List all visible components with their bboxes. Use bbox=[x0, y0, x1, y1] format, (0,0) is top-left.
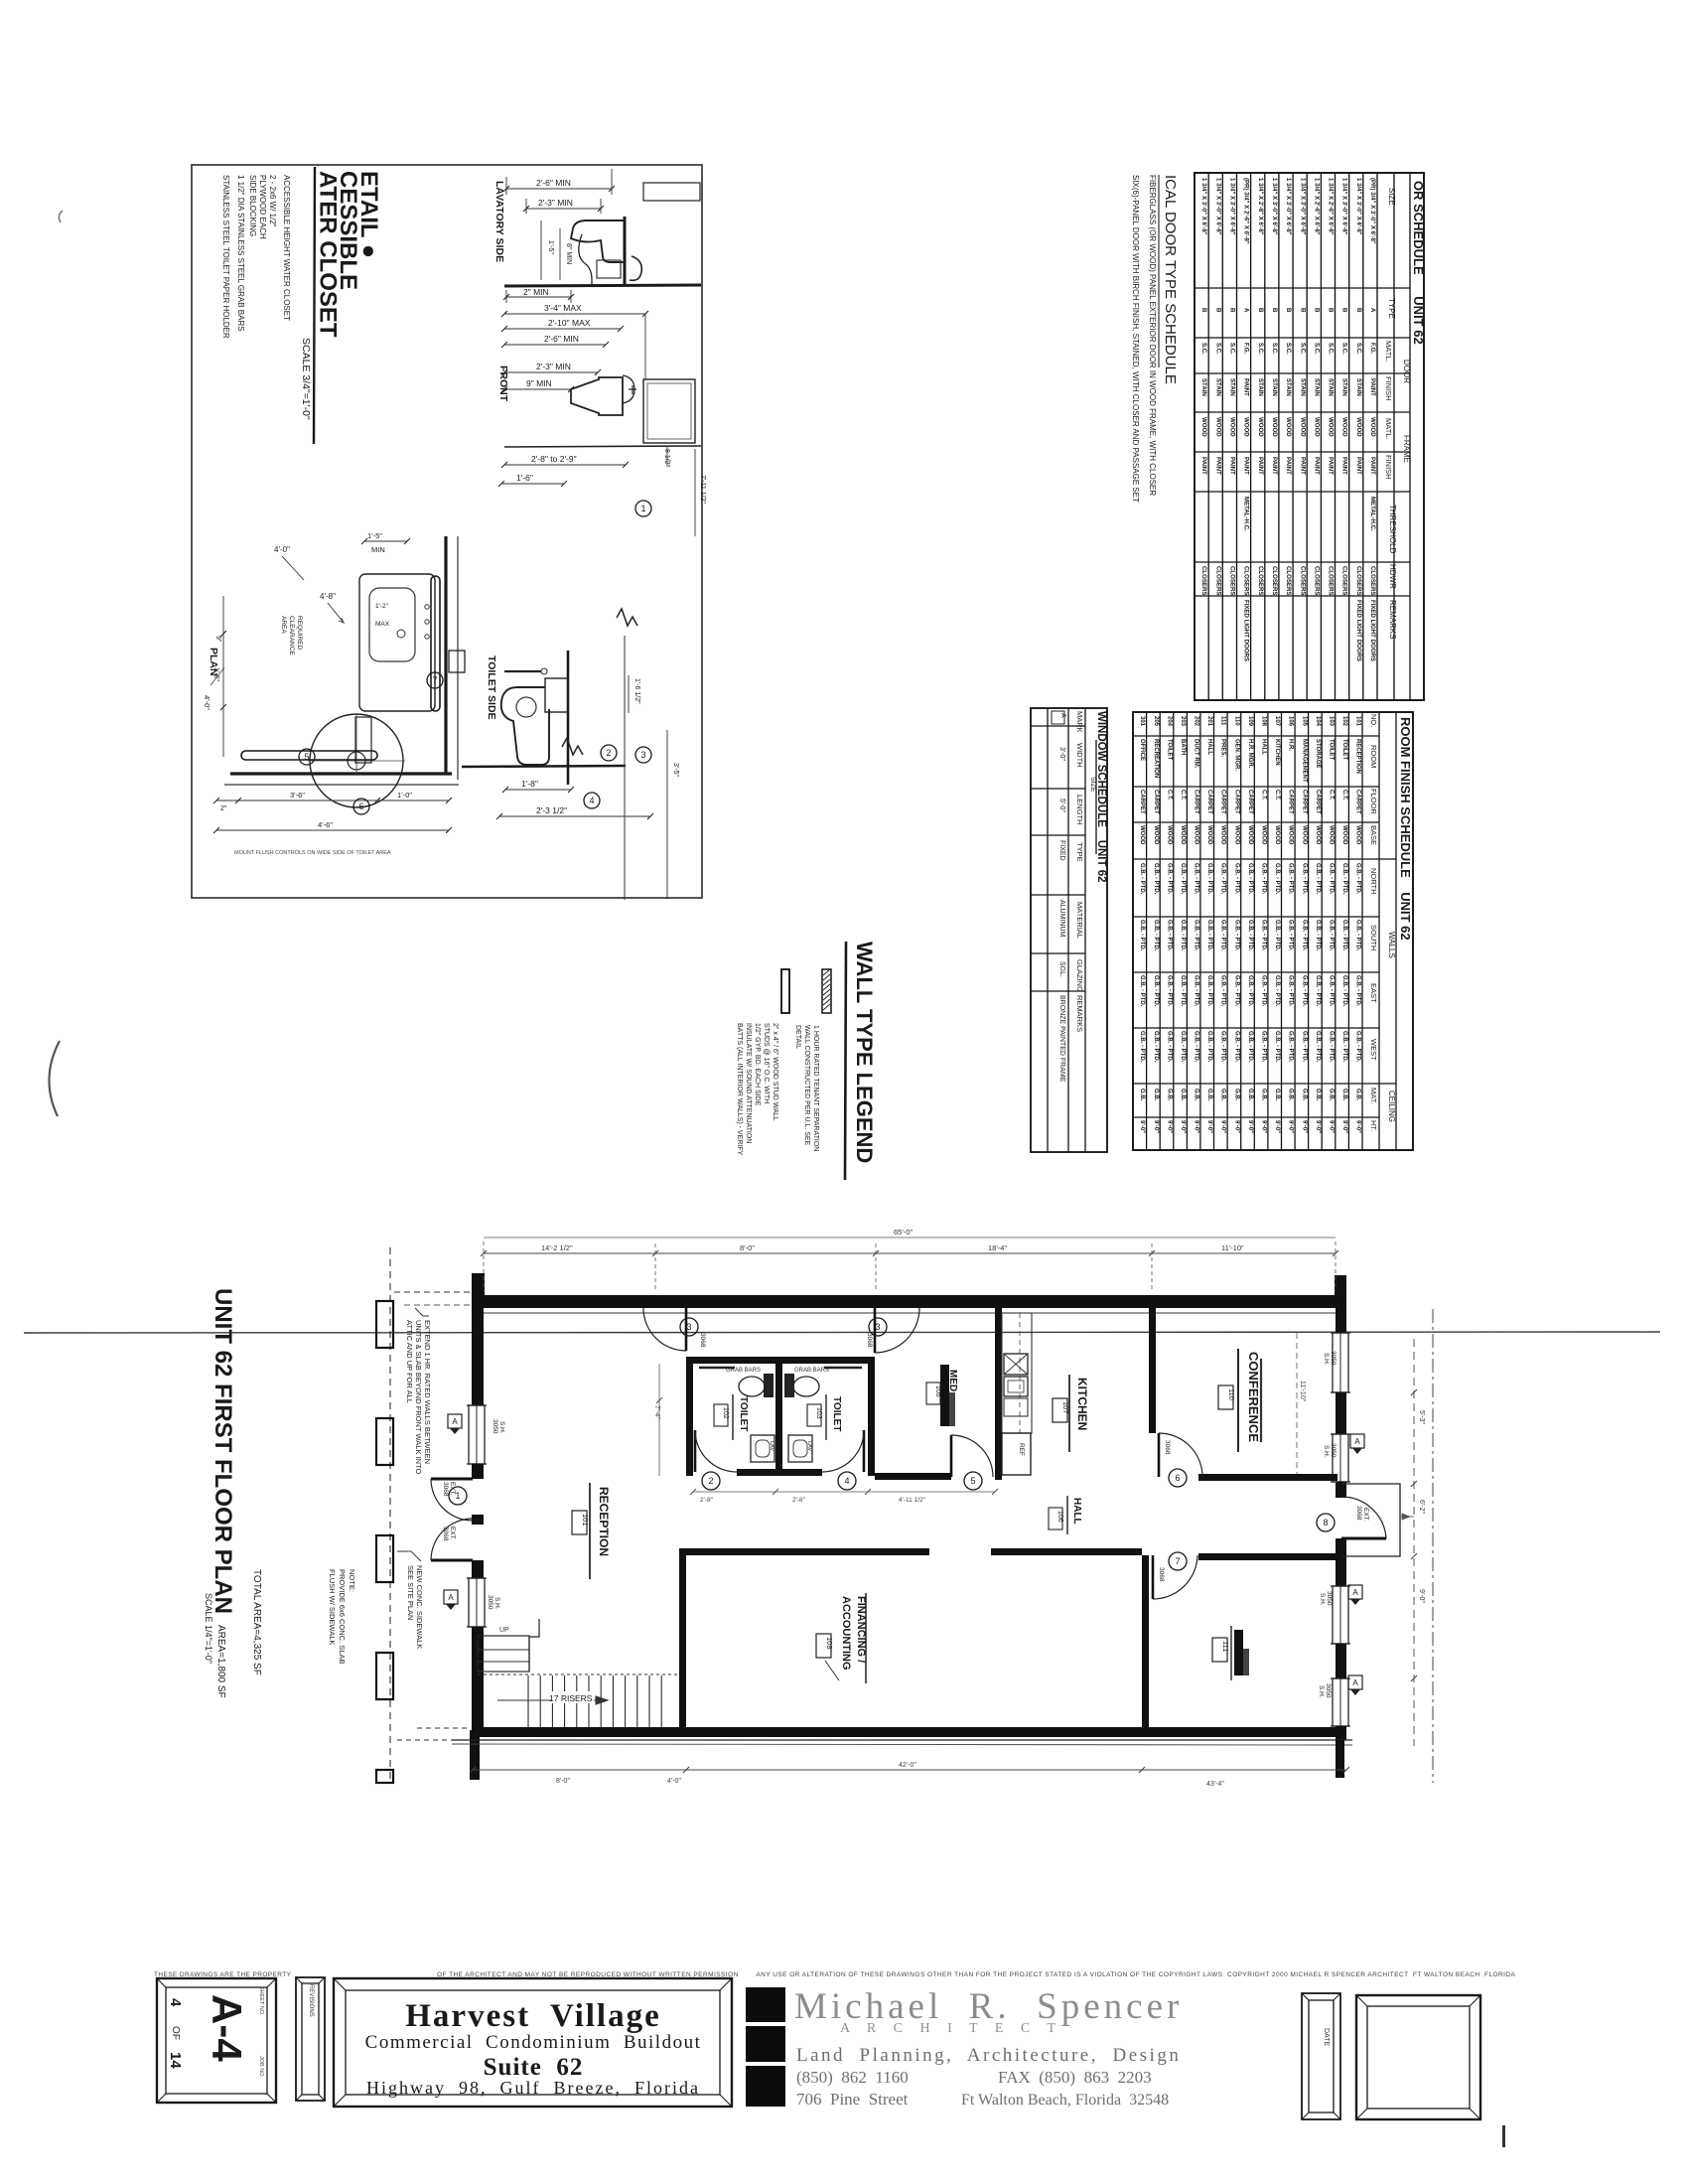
svg-text:G.B. - PTD.: G.B. - PTD. bbox=[1206, 1031, 1212, 1063]
svg-text:CLOSERS: CLOSERS bbox=[1214, 566, 1221, 595]
svg-text:S.C.: S.C. bbox=[1285, 343, 1292, 355]
svg-text:Highway 98, Gulf Breeze, F: Highway 98, Gulf Breeze, Florida bbox=[366, 2078, 700, 2098]
svg-text:G.B. - PTD.: G.B. - PTD. bbox=[1139, 975, 1145, 1007]
svg-text:109: 109 bbox=[1247, 716, 1253, 727]
svg-text:ICAL DOOR TYPE SCHEDULE: ICAL DOOR TYPE SCHEDULE bbox=[1162, 175, 1179, 384]
svg-text:Commercial Condominium Build: Commercial Condominium Buildout bbox=[365, 2032, 702, 2053]
svg-text:2" MIN: 2" MIN bbox=[523, 287, 549, 297]
svg-text:G.B. - PTD.: G.B. - PTD. bbox=[1315, 920, 1321, 951]
svg-text:9'-0": 9'-0" bbox=[1260, 1120, 1266, 1133]
svg-text:G.B. - PTD.: G.B. - PTD. bbox=[1153, 1031, 1159, 1063]
svg-text:G.B. - PTD.: G.B. - PTD. bbox=[1153, 920, 1159, 951]
svg-text:G.B. - PTD.: G.B. - PTD. bbox=[1180, 863, 1186, 895]
svg-text:SOUTH: SOUTH bbox=[1369, 925, 1378, 950]
svg-text:3: 3 bbox=[875, 1322, 880, 1332]
svg-text:2'-3 1/2": 2'-3 1/2" bbox=[536, 805, 567, 815]
svg-text:WOOD: WOOD bbox=[1328, 825, 1334, 845]
svg-text:DOOR: DOOR bbox=[1402, 360, 1411, 383]
svg-text:A-4: A-4 bbox=[204, 1994, 250, 2062]
svg-text:S.C.: S.C. bbox=[1214, 343, 1221, 355]
svg-text:65'-0": 65'-0" bbox=[894, 1228, 913, 1237]
svg-text:2'-6" MIN: 2'-6" MIN bbox=[536, 178, 571, 188]
svg-text:SIZE: SIZE bbox=[1387, 188, 1396, 206]
svg-text:PAINT: PAINT bbox=[1299, 457, 1306, 475]
svg-text:G.B.: G.B. bbox=[1328, 1089, 1334, 1101]
svg-text:G.B. - PTD.: G.B. - PTD. bbox=[1233, 1031, 1239, 1063]
svg-text:A: A bbox=[1354, 1437, 1360, 1446]
svg-text:WOOD: WOOD bbox=[1288, 825, 1294, 845]
svg-text:42'-0": 42'-0" bbox=[899, 1762, 916, 1769]
svg-text:107: 107 bbox=[1061, 1401, 1070, 1414]
svg-text:WOOD: WOOD bbox=[1139, 825, 1145, 845]
svg-text:S.C.: S.C. bbox=[1355, 343, 1362, 355]
svg-text:3: 3 bbox=[640, 750, 645, 760]
svg-text:PAINT: PAINT bbox=[1328, 457, 1335, 475]
svg-text:B: B bbox=[1299, 308, 1306, 313]
svg-text:FIXED LIGHT DOORS: FIXED LIGHT DOORS bbox=[1369, 600, 1376, 661]
svg-text:REMARKS: REMARKS bbox=[1388, 600, 1397, 640]
svg-text:11'-10": 11'-10" bbox=[1221, 1243, 1244, 1252]
svg-text:1/2" GYP. BD. EACH SIDE: 1/2" GYP. BD. EACH SIDE bbox=[754, 1023, 761, 1106]
svg-text:TOTAL AREA=4,325 SF: TOTAL AREA=4,325 SF bbox=[251, 1569, 262, 1675]
svg-text:1: 1 bbox=[640, 504, 645, 513]
svg-text:STAIN: STAIN bbox=[1229, 378, 1236, 396]
svg-text:SGL.: SGL. bbox=[1058, 961, 1065, 977]
svg-text:SCALE 1/4"=1'-0": SCALE 1/4"=1'-0" bbox=[204, 1593, 213, 1664]
svg-text:105: 105 bbox=[934, 1385, 941, 1397]
svg-text:MARK: MARK bbox=[1075, 711, 1084, 733]
svg-text:1 3/4" X 2'-6" X 6'-8": 1 3/4" X 2'-6" X 6'-8" bbox=[1313, 178, 1320, 235]
svg-text:CARPET: CARPET bbox=[1301, 790, 1307, 814]
svg-text:G.B. - PTD.: G.B. - PTD. bbox=[1274, 1031, 1280, 1063]
svg-text:SIDE BLOCKING: SIDE BLOCKING bbox=[248, 175, 257, 236]
svg-text:3050: 3050 bbox=[492, 1419, 498, 1434]
svg-text:105: 105 bbox=[1301, 716, 1307, 727]
svg-text:AREA: AREA bbox=[280, 616, 287, 634]
svg-text:5: 5 bbox=[970, 1476, 975, 1486]
svg-text:14: 14 bbox=[167, 2052, 184, 2069]
svg-text:PAINT: PAINT bbox=[1355, 457, 1362, 475]
svg-text:S.C.: S.C. bbox=[1313, 343, 1320, 355]
svg-text:JOB NO.: JOB NO. bbox=[258, 2056, 264, 2078]
svg-text:CLEARANCE: CLEARANCE bbox=[288, 616, 295, 655]
svg-text:S.H.: S.H. bbox=[1323, 1445, 1330, 1458]
svg-text:WOOD: WOOD bbox=[1341, 825, 1347, 845]
svg-text:2'-8" to 2'-9": 2'-8" to 2'-9" bbox=[531, 454, 577, 464]
svg-text:9'-0": 9'-0" bbox=[1194, 1120, 1199, 1133]
svg-text:SIX(6)-PANEL DOOR WITH BIRCH F: SIX(6)-PANEL DOOR WITH BIRCH FINISH, STA… bbox=[1131, 175, 1140, 503]
svg-text:A R C H I T E C T: A R C H I T E C T bbox=[840, 2021, 1062, 2036]
svg-text:G.B.: G.B. bbox=[1153, 1089, 1159, 1101]
svg-text:EXT.: EXT. bbox=[449, 1482, 456, 1496]
svg-text:6: 6 bbox=[1175, 1473, 1180, 1483]
svg-text:CARPET: CARPET bbox=[1153, 790, 1159, 814]
svg-text:7'-11 1/2": 7'-11 1/2" bbox=[699, 475, 706, 505]
svg-text:CARPET: CARPET bbox=[1220, 790, 1226, 814]
svg-text:NEW CONC. SIDEWALK: NEW CONC. SIDEWALK bbox=[415, 1565, 424, 1649]
svg-text:WOOD: WOOD bbox=[1243, 417, 1250, 437]
svg-text:101: 101 bbox=[581, 1514, 590, 1527]
svg-text:FAX (850) 863 2203: FAX (850) 863 2203 bbox=[998, 2068, 1152, 2087]
svg-text:PRES.: PRES. bbox=[1220, 739, 1226, 757]
svg-text:SEE SITE PLAN: SEE SITE PLAN bbox=[406, 1565, 415, 1620]
svg-text:WOOD: WOOD bbox=[1315, 825, 1321, 845]
svg-text:BASE: BASE bbox=[1369, 825, 1378, 845]
svg-text:WOOD: WOOD bbox=[1355, 825, 1361, 845]
svg-text:G.B. - PTD.: G.B. - PTD. bbox=[1247, 1031, 1253, 1063]
svg-text:9": 9" bbox=[214, 636, 221, 643]
svg-text:EXTEND 1 HR. RATED WALLS BETWE: EXTEND 1 HR. RATED WALLS BETWEEN bbox=[423, 1320, 432, 1464]
svg-text:111: 111 bbox=[1221, 1641, 1230, 1652]
svg-text:G.B. - PTD.: G.B. - PTD. bbox=[1180, 920, 1186, 951]
svg-text:B: B bbox=[1355, 308, 1362, 313]
svg-text:TOILET SIDE: TOILET SIDE bbox=[486, 655, 497, 720]
svg-text:G.B. - PTD.: G.B. - PTD. bbox=[1341, 975, 1347, 1007]
svg-text:2: 2 bbox=[606, 748, 611, 758]
svg-text:706 Pine Street: 706 Pine Street bbox=[796, 2090, 909, 2109]
svg-text:ATER CLOSET: ATER CLOSET bbox=[315, 171, 342, 338]
svg-text:8'-0": 8'-0" bbox=[556, 1778, 570, 1785]
svg-text:G.B. - PTD.: G.B. - PTD. bbox=[1315, 863, 1321, 895]
svg-text:G.B. - PTD.: G.B. - PTD. bbox=[1247, 975, 1253, 1007]
svg-text:2'-3" MIN: 2'-3" MIN bbox=[538, 198, 573, 208]
svg-text:G.B. - PTD.: G.B. - PTD. bbox=[1288, 863, 1294, 895]
svg-text:INSULATE W/ SOUND ATTENUATION: INSULATE W/ SOUND ATTENUATION bbox=[745, 1023, 752, 1143]
svg-text:G.B. - PTD.: G.B. - PTD. bbox=[1139, 1031, 1145, 1063]
svg-text:G.B. - PTD.: G.B. - PTD. bbox=[1166, 975, 1172, 1007]
svg-text:202: 202 bbox=[1194, 716, 1199, 727]
svg-text:PAINT: PAINT bbox=[1369, 457, 1376, 475]
svg-text:DETAIL: DETAIL bbox=[794, 1025, 801, 1049]
svg-text:G.B.: G.B. bbox=[1139, 1089, 1145, 1101]
svg-text:NORTH: NORTH bbox=[1369, 868, 1378, 895]
svg-text:G.B. - PTD.: G.B. - PTD. bbox=[1301, 1031, 1307, 1063]
svg-text:WOOD: WOOD bbox=[1257, 417, 1264, 437]
svg-text:9'-0": 9'-0" bbox=[1418, 1589, 1425, 1603]
svg-text:LAV: LAV bbox=[806, 1441, 812, 1451]
svg-text:FRAME: FRAME bbox=[1402, 435, 1411, 463]
svg-text:CLOSERS: CLOSERS bbox=[1313, 566, 1320, 595]
svg-text:CLOSERS: CLOSERS bbox=[1243, 566, 1250, 595]
svg-text:3068: 3068 bbox=[1164, 1440, 1171, 1455]
svg-text:G.B. - PTD.: G.B. - PTD. bbox=[1233, 975, 1239, 1007]
svg-text:ACCESSIBLE HEIGHT WATER CLOSET: ACCESSIBLE HEIGHT WATER CLOSET bbox=[282, 175, 291, 321]
svg-text:1 3/4" X 3'-0" X 6'-8": 1 3/4" X 3'-0" X 6'-8" bbox=[1285, 178, 1292, 235]
svg-text:(PR) 3/4" X 2'-6" X 6'-8": (PR) 3/4" X 2'-6" X 6'-8" bbox=[1243, 178, 1250, 244]
svg-text:RECREATION: RECREATION bbox=[1153, 739, 1159, 778]
svg-text:C.T.: C.T. bbox=[1328, 790, 1334, 801]
svg-text:B: B bbox=[1313, 308, 1320, 313]
svg-text:CARPET: CARPET bbox=[1288, 790, 1294, 814]
svg-text:G.B. - PTD.: G.B. - PTD. bbox=[1288, 1031, 1294, 1063]
svg-text:4: 4 bbox=[167, 1998, 184, 2007]
svg-text:FLUSH W/ SIDEWALK: FLUSH W/ SIDEWALK bbox=[328, 1569, 337, 1645]
svg-text:STAIN: STAIN bbox=[1355, 378, 1362, 396]
svg-text:STAIN: STAIN bbox=[1313, 378, 1320, 396]
svg-text:CARPET: CARPET bbox=[1194, 790, 1199, 814]
svg-text:G.B. - PTD.: G.B. - PTD. bbox=[1260, 863, 1266, 895]
svg-text:GLAZING: GLAZING bbox=[1075, 959, 1084, 992]
svg-text:3068: 3068 bbox=[866, 1333, 873, 1348]
svg-text:107: 107 bbox=[1274, 716, 1280, 727]
svg-text:CARPET: CARPET bbox=[1315, 790, 1321, 814]
svg-text:G.B. - PTD.: G.B. - PTD. bbox=[1260, 1031, 1266, 1063]
svg-text:3068: 3068 bbox=[699, 1333, 706, 1348]
svg-text:18'-4": 18'-4" bbox=[988, 1243, 1007, 1252]
svg-text:G.B. - PTD.: G.B. - PTD. bbox=[1260, 920, 1266, 951]
svg-text:CARPET: CARPET bbox=[1355, 790, 1361, 814]
svg-text:WOOD: WOOD bbox=[1229, 417, 1236, 437]
svg-text:1 3/4" X 3'-0" X 6'-8": 1 3/4" X 3'-0" X 6'-8" bbox=[1200, 178, 1207, 235]
svg-text:CLOSERS: CLOSERS bbox=[1229, 566, 1236, 595]
svg-text:G.B. - PTD.: G.B. - PTD. bbox=[1233, 920, 1239, 951]
svg-text:111: 111 bbox=[1220, 716, 1226, 726]
svg-text:2 - 2x6 W/ 1/2": 2 - 2x6 W/ 1/2" bbox=[268, 175, 277, 227]
svg-text:METAL-H.C.: METAL-H.C. bbox=[1243, 497, 1250, 531]
svg-text:STAIN: STAIN bbox=[1285, 378, 1292, 396]
svg-text:ROOM FINISH SCHEDULE UNIT 6: ROOM FINISH SCHEDULE UNIT 62 bbox=[1398, 717, 1413, 941]
svg-text:C.T.: C.T. bbox=[1166, 790, 1172, 801]
svg-text:3'-0": 3'-0" bbox=[1058, 747, 1065, 761]
svg-text:G.B. - PTD.: G.B. - PTD. bbox=[1288, 920, 1294, 951]
svg-text:H.R.: H.R. bbox=[1288, 739, 1294, 751]
svg-text:G.B. - PTD.: G.B. - PTD. bbox=[1355, 1031, 1361, 1063]
svg-text:SCALE 3/4"=1'-0": SCALE 3/4"=1'-0" bbox=[300, 338, 312, 420]
svg-text:ACCOUNTING: ACCOUNTING bbox=[840, 1596, 852, 1671]
svg-text:6'-2": 6'-2" bbox=[1418, 1500, 1425, 1514]
svg-text:B: B bbox=[1214, 308, 1221, 313]
svg-text:8 1/2": 8 1/2" bbox=[663, 449, 670, 468]
svg-text:4'-0": 4'-0" bbox=[667, 1778, 681, 1785]
svg-text:TOILET: TOILET bbox=[738, 1396, 749, 1431]
svg-text:Ft Walton Beach, Florida 3254: Ft Walton Beach, Florida 32548 bbox=[961, 2092, 1169, 2109]
svg-text:BRONZE PAINTED FRAME: BRONZE PAINTED FRAME bbox=[1058, 995, 1065, 1083]
svg-text:G.B. - PTD.: G.B. - PTD. bbox=[1153, 975, 1159, 1007]
svg-text:LAV: LAV bbox=[769, 1441, 774, 1451]
svg-text:A: A bbox=[452, 1417, 458, 1426]
svg-text:WOOD: WOOD bbox=[1233, 825, 1239, 845]
svg-text:G.B. - PTD.: G.B. - PTD. bbox=[1194, 920, 1199, 951]
svg-text:B: B bbox=[1328, 308, 1335, 313]
svg-text:TYPE: TYPE bbox=[1387, 298, 1396, 319]
svg-text:4: 4 bbox=[844, 1476, 849, 1486]
svg-text:1 3/4" X 3'-0" X 6'-8": 1 3/4" X 3'-0" X 6'-8" bbox=[1214, 178, 1221, 235]
svg-text:A: A bbox=[1243, 308, 1250, 313]
svg-text:SIZE: SIZE bbox=[1089, 777, 1096, 793]
svg-text:WOOD: WOOD bbox=[1214, 417, 1221, 437]
svg-text:S.C.: S.C. bbox=[1200, 343, 1207, 355]
svg-text:2: 2 bbox=[708, 1476, 713, 1486]
svg-text:G.B. - PTD.: G.B. - PTD. bbox=[1341, 1031, 1347, 1063]
svg-text:9'-0": 9'-0" bbox=[1247, 1120, 1253, 1133]
svg-text:G.B. - PTD.: G.B. - PTD. bbox=[1355, 975, 1361, 1007]
svg-text:MAX: MAX bbox=[375, 621, 390, 628]
svg-text:1 3/4" X 2'-6" X 6'-8": 1 3/4" X 2'-6" X 6'-8" bbox=[1328, 178, 1335, 235]
svg-text:G.B.: G.B. bbox=[1233, 1089, 1239, 1101]
svg-text:108: 108 bbox=[1260, 716, 1266, 727]
svg-text:DATE: DATE bbox=[1323, 2028, 1330, 2046]
svg-text:301: 301 bbox=[1139, 716, 1145, 727]
svg-text:G.B. - PTD.: G.B. - PTD. bbox=[1166, 1031, 1172, 1063]
svg-text:PAINT: PAINT bbox=[1200, 457, 1207, 475]
svg-text:9'-0": 9'-0" bbox=[1220, 1120, 1226, 1133]
svg-text:WOOD: WOOD bbox=[1285, 417, 1292, 437]
svg-text:Harvest Village: Harvest Village bbox=[405, 1998, 660, 2034]
svg-text:G.B.: G.B. bbox=[1180, 1089, 1186, 1101]
svg-text:OR SCHEDULE UNIT 62: OR SCHEDULE UNIT 62 bbox=[1411, 181, 1426, 345]
svg-text:PAINT: PAINT bbox=[1243, 378, 1250, 396]
svg-text:SHEET NO.: SHEET NO. bbox=[258, 1986, 264, 2016]
svg-text:PAINT: PAINT bbox=[1313, 457, 1320, 475]
svg-text:G.B.: G.B. bbox=[1194, 1089, 1199, 1101]
svg-text:MIN: MIN bbox=[371, 545, 385, 554]
svg-text:G.B. - PTD.: G.B. - PTD. bbox=[1180, 1031, 1186, 1063]
svg-text:FIXED LIGHT DOORS: FIXED LIGHT DOORS bbox=[1243, 600, 1250, 661]
svg-text:G.B. - PTD.: G.B. - PTD. bbox=[1260, 975, 1266, 1007]
svg-text:FINISH: FINISH bbox=[1384, 376, 1393, 401]
svg-text:C.T.: C.T. bbox=[1260, 790, 1266, 801]
svg-text:205: 205 bbox=[1153, 716, 1159, 727]
svg-text:G.B.: G.B. bbox=[1260, 1089, 1266, 1101]
svg-text:S.H.: S.H. bbox=[498, 1421, 505, 1434]
svg-text:GEN. MGR.: GEN. MGR. bbox=[1233, 739, 1239, 771]
svg-text:204: 204 bbox=[1166, 716, 1172, 727]
svg-text:G.B.: G.B. bbox=[1301, 1089, 1307, 1101]
svg-text:9'-0": 9'-0" bbox=[1233, 1120, 1239, 1133]
svg-text:3'-6": 3'-6" bbox=[290, 791, 305, 800]
svg-text:2'-8": 2'-8" bbox=[792, 1497, 806, 1504]
svg-text:HALL: HALL bbox=[1071, 1498, 1082, 1525]
svg-text:8'-0": 8'-0" bbox=[740, 1243, 755, 1252]
svg-text:STAIN: STAIN bbox=[1271, 378, 1278, 396]
svg-text:G.B. - PTD.: G.B. - PTD. bbox=[1274, 863, 1280, 895]
svg-text:G.B. - PTD.: G.B. - PTD. bbox=[1355, 920, 1361, 951]
svg-text:3: 3 bbox=[686, 1322, 691, 1332]
svg-text:HALL: HALL bbox=[1206, 739, 1212, 755]
svg-text:TOILET: TOILET bbox=[831, 1396, 842, 1431]
svg-text:1 3/4" X 3'-0" X 6'-8": 1 3/4" X 3'-0" X 6'-8" bbox=[1299, 178, 1306, 235]
svg-text:4'-6": 4'-6" bbox=[318, 820, 333, 829]
svg-text:C.T.: C.T. bbox=[1341, 790, 1347, 801]
svg-text:G.B. - PTD.: G.B. - PTD. bbox=[1180, 975, 1186, 1007]
svg-text:1 3/4" X 2'-8" X 6'-8": 1 3/4" X 2'-8" X 6'-8" bbox=[1257, 178, 1264, 235]
svg-text:WOOD: WOOD bbox=[1220, 825, 1226, 845]
svg-text:7: 7 bbox=[432, 675, 437, 685]
svg-text:FIXED LIGHT DOORS: FIXED LIGHT DOORS bbox=[1355, 600, 1362, 661]
svg-text:WOOD: WOOD bbox=[1328, 417, 1335, 437]
svg-text:WOOD: WOOD bbox=[1166, 825, 1172, 845]
svg-text:9" MIN: 9" MIN bbox=[526, 378, 552, 388]
svg-text:CEILING: CEILING bbox=[1387, 1091, 1396, 1122]
svg-text:STAIN: STAIN bbox=[1200, 378, 1207, 396]
svg-text:G.B. - PTD.: G.B. - PTD. bbox=[1288, 975, 1294, 1007]
svg-text:7'-4": 7'-4" bbox=[653, 1405, 660, 1419]
svg-text:G.B. - PTD.: G.B. - PTD. bbox=[1233, 863, 1239, 895]
svg-text:PLYWOOD EACH: PLYWOOD EACH bbox=[258, 175, 267, 239]
svg-text:4'-0": 4'-0" bbox=[274, 545, 290, 554]
svg-text:103: 103 bbox=[1328, 716, 1334, 727]
svg-text:WOOD: WOOD bbox=[1180, 825, 1186, 845]
svg-text:3050: 3050 bbox=[1326, 1591, 1333, 1606]
svg-text:S.C.: S.C. bbox=[1257, 343, 1264, 355]
svg-text:G.B. - PTD.: G.B. - PTD. bbox=[1194, 863, 1199, 895]
svg-text:WOOD: WOOD bbox=[1194, 825, 1199, 845]
svg-text:5'-0": 5'-0" bbox=[1058, 799, 1065, 812]
svg-text:FIBERGLASS (OR WOOD) PANEL EXT: FIBERGLASS (OR WOOD) PANEL EXTERIOR DOOR… bbox=[1148, 175, 1157, 496]
svg-text:G.B. - PTD.: G.B. - PTD. bbox=[1166, 920, 1172, 951]
svg-text:H.R. MGR.: H.R. MGR. bbox=[1247, 739, 1253, 769]
svg-text:8" MIN: 8" MIN bbox=[565, 243, 572, 264]
svg-text:G.B. - PTD.: G.B. - PTD. bbox=[1274, 920, 1280, 951]
svg-text:REVISIONS: REVISIONS bbox=[308, 1984, 314, 2017]
svg-text:B: B bbox=[1229, 308, 1236, 313]
svg-text:103: 103 bbox=[815, 1407, 822, 1419]
svg-text:ALUMINUM: ALUMINUM bbox=[1058, 900, 1065, 938]
svg-text:Land Planning, Architecture,: Land Planning, Architecture, Design bbox=[796, 2045, 1181, 2066]
svg-text:WOOD: WOOD bbox=[1301, 825, 1307, 845]
svg-text:S.H.: S.H. bbox=[493, 1597, 500, 1610]
svg-text:PAINT: PAINT bbox=[1271, 457, 1278, 475]
svg-text:MATL.: MATL. bbox=[1384, 341, 1393, 363]
svg-text:G.B. - PTD.: G.B. - PTD. bbox=[1328, 920, 1334, 951]
svg-text:GRAB BARS: GRAB BARS bbox=[794, 1368, 829, 1374]
svg-text:G.B.: G.B. bbox=[1355, 1089, 1361, 1101]
svg-text:CARPET: CARPET bbox=[1233, 790, 1239, 814]
svg-text:G.B. - PTD.: G.B. - PTD. bbox=[1247, 863, 1253, 895]
svg-text:TOILET: TOILET bbox=[1166, 739, 1172, 761]
svg-text:9'-0": 9'-0" bbox=[1180, 1120, 1186, 1133]
svg-text:G.B. - PTD.: G.B. - PTD. bbox=[1194, 975, 1199, 1007]
svg-text:WOOD: WOOD bbox=[1299, 417, 1306, 437]
svg-text:LENGTH: LENGTH bbox=[1075, 795, 1084, 824]
svg-text:MATL.: MATL. bbox=[1384, 418, 1393, 440]
svg-text:G.B.: G.B. bbox=[1288, 1089, 1294, 1101]
svg-text:HT.: HT. bbox=[1369, 1120, 1378, 1131]
svg-text:1'-5": 1'-5" bbox=[547, 240, 554, 254]
svg-text:1'-5": 1'-5" bbox=[367, 531, 382, 540]
svg-text:WINDOW SCHEDULE UNIT 62: WINDOW SCHEDULE UNIT 62 bbox=[1095, 711, 1107, 883]
svg-text:BATTS (ALL INTERIOR WALLS) - V: BATTS (ALL INTERIOR WALLS) - VERIFY bbox=[736, 1023, 743, 1155]
svg-text:9'-0": 9'-0" bbox=[1328, 1120, 1334, 1133]
svg-text:9'-0": 9'-0" bbox=[1274, 1120, 1280, 1133]
svg-text:G.B.: G.B. bbox=[1206, 1089, 1212, 1101]
svg-text:STAIN: STAIN bbox=[1214, 378, 1221, 396]
svg-text:5'-3": 5'-3" bbox=[1418, 1410, 1425, 1424]
svg-text:OFFICE: OFFICE bbox=[1139, 739, 1145, 761]
svg-text:STAINLESS STEEL TOILET PAPER H: STAINLESS STEEL TOILET PAPER HOLDER bbox=[221, 175, 230, 339]
svg-text:WEST: WEST bbox=[1369, 1039, 1378, 1061]
svg-text:MANAGEMENT: MANAGEMENT bbox=[1301, 739, 1307, 783]
svg-text:S.C.: S.C. bbox=[1299, 343, 1306, 355]
svg-text:G.B. - PTD.: G.B. - PTD. bbox=[1206, 863, 1212, 895]
svg-text:9'-0": 9'-0" bbox=[1166, 1120, 1172, 1133]
svg-text:2'-8": 2'-8" bbox=[700, 1497, 714, 1504]
svg-text:PAINT: PAINT bbox=[1257, 457, 1264, 475]
svg-text:EXT.: EXT. bbox=[1362, 1508, 1369, 1522]
svg-text:S.C.: S.C. bbox=[1229, 343, 1236, 355]
svg-text:PROVIDE 6x6 CONC. SLAB: PROVIDE 6x6 CONC. SLAB bbox=[338, 1569, 347, 1664]
svg-text:9'-0": 9'-0" bbox=[1139, 1120, 1145, 1133]
svg-text:4'-0": 4'-0" bbox=[203, 695, 211, 710]
svg-text:WIDTH: WIDTH bbox=[1075, 743, 1084, 768]
svg-text:G.B.: G.B. bbox=[1274, 1089, 1280, 1101]
svg-text:CLOSERS: CLOSERS bbox=[1355, 566, 1362, 595]
svg-text:G.B. - PTD.: G.B. - PTD. bbox=[1206, 975, 1212, 1007]
svg-text:G.B. - PTD.: G.B. - PTD. bbox=[1220, 920, 1226, 951]
svg-text:14'-2 1/2": 14'-2 1/2" bbox=[541, 1243, 573, 1252]
svg-text:UNIT 62 FIRST FLOOR PLAN: UNIT 62 FIRST FLOOR PLAN bbox=[210, 1288, 236, 1614]
svg-text:CLOSERS: CLOSERS bbox=[1271, 566, 1278, 595]
